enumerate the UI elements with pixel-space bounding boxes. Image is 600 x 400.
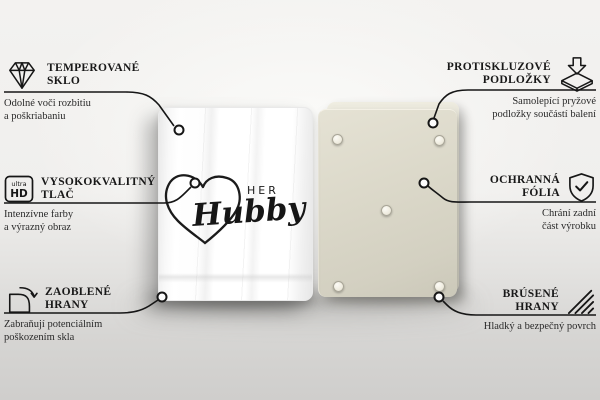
feature-high-quality-print: ultra HD VYSOKOKVALITNÝ TLAČ Intenzívne … <box>4 174 162 234</box>
feature-anti-slip-pads: PROTISKLUZOVÉ PODLOŽKY Samolepící pryžov… <box>438 58 596 121</box>
feature-title-line: VYSOKOKVALITNÝ <box>41 176 156 189</box>
feature-desc-line: podložky součástí balení <box>438 108 596 121</box>
feature-desc-line: a výrazný obraz <box>4 221 162 234</box>
connector-endpoint <box>191 179 200 188</box>
diamond-icon <box>4 60 40 91</box>
feature-title-line: TLAČ <box>41 189 156 202</box>
feature-desc-line: Hladký a bezpečný povrch <box>438 320 596 333</box>
feature-desc-line: část výrobku <box>438 220 596 233</box>
feature-title-line: HRANY <box>45 299 111 312</box>
feature-desc-line: Chrání zadní <box>438 207 596 220</box>
feature-ground-edges: BRÚSENÉ HRANY Hladký a bezpečný povrch <box>438 286 596 333</box>
feature-protective-film: OCHRANNÁ FÓLIA Chrání zadní část výrobku <box>438 172 596 233</box>
feature-desc-line: a poškriabaniu <box>4 110 162 123</box>
ultra-hd-icon: ultra HD <box>4 175 34 203</box>
feature-desc-line: Intenzívne farby <box>4 208 162 221</box>
feature-rounded-edges: ZAOBLENÉ HRANY Zabraňují potenciálním po… <box>4 284 162 344</box>
feature-title-line: HRANY <box>503 301 559 314</box>
product-infographic: HER Hubby <box>0 0 600 400</box>
shield-check-icon <box>567 172 596 203</box>
ultra-label: ultra <box>11 180 26 188</box>
hatched-edge-icon <box>566 287 596 315</box>
feature-desc-line: poškozením skla <box>4 331 162 344</box>
feature-title-line: SKLO <box>47 75 140 88</box>
feature-title-line: TEMPEROVANÉ <box>47 62 140 75</box>
feature-title-line: FÓLIA <box>490 187 560 200</box>
feature-title-line: PROTISKLUZOVÉ <box>447 61 551 74</box>
connector-endpoint <box>429 119 438 128</box>
feature-desc-line: Zabraňují potenciálním <box>4 318 162 331</box>
feature-tempered-glass: TEMPEROVANÉ SKLO Odolné voči rozbitiu a … <box>4 58 162 123</box>
connector-endpoint <box>175 126 184 135</box>
anti-slip-pad-icon <box>558 56 596 93</box>
feature-title-line: OCHRANNÁ <box>490 174 560 187</box>
feature-title-line: BRÚSENÉ <box>503 288 559 301</box>
feature-title-line: PODLOŽKY <box>447 74 551 87</box>
connector-endpoint <box>420 179 429 188</box>
feature-title-line: ZAOBLENÉ <box>45 286 111 299</box>
feature-desc-line: Samolepící pryžové <box>438 95 596 108</box>
rounded-corner-icon <box>4 284 38 314</box>
hd-label: HD <box>10 188 28 200</box>
feature-desc-line: Odolné voči rozbitiu <box>4 97 162 110</box>
